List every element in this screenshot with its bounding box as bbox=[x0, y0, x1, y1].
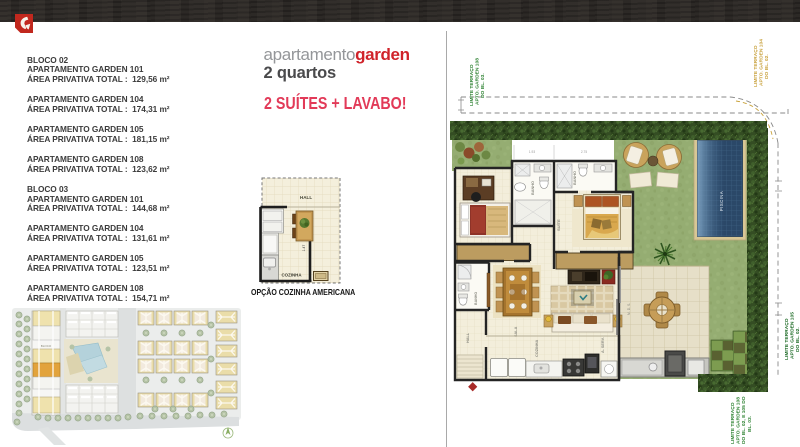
svg-text:BLOCO: BLOCO bbox=[41, 344, 52, 348]
svg-text:A. SERV.: A. SERV. bbox=[601, 337, 605, 353]
svg-text:BANHO: BANHO bbox=[474, 292, 478, 305]
svg-text:HALL: HALL bbox=[466, 332, 470, 343]
svg-text:PISCINA: PISCINA bbox=[719, 191, 724, 211]
svg-text:M. D. S.: M. D. S. bbox=[627, 303, 631, 315]
svg-text:1.47: 1.47 bbox=[302, 245, 306, 252]
svg-text:COZINHA: COZINHA bbox=[281, 273, 302, 278]
svg-text:LIMITE TERRAÇOAPTO. GARDEN 104: LIMITE TERRAÇOAPTO. GARDEN 104DO BL. 02. bbox=[753, 39, 770, 87]
svg-text:BANHO: BANHO bbox=[531, 181, 535, 195]
svg-text:BANHO: BANHO bbox=[573, 171, 577, 185]
svg-text:HALL: HALL bbox=[300, 195, 312, 200]
svg-text:2.75: 2.75 bbox=[581, 150, 587, 154]
svg-text:LIMITE TERRAÇOAPTO. GARDEN 108: LIMITE TERRAÇOAPTO. GARDEN 108DO BL. 02,… bbox=[730, 396, 753, 444]
svg-text:COZINHA: COZINHA bbox=[535, 339, 539, 357]
svg-text:SUÍTE: SUÍTE bbox=[556, 219, 561, 231]
svg-text:SALA: SALA bbox=[514, 326, 518, 337]
svg-text:LIMITE TERRAÇOAPTO. GARDEN 108: LIMITE TERRAÇOAPTO. GARDEN 108DO BL. 03. bbox=[469, 58, 486, 106]
svg-text:1.93: 1.93 bbox=[529, 150, 535, 154]
svg-text:LIMITE TERRAÇOAPTO. GARDEN 105: LIMITE TERRAÇOAPTO. GARDEN 105DO BL. 02. bbox=[784, 312, 800, 360]
